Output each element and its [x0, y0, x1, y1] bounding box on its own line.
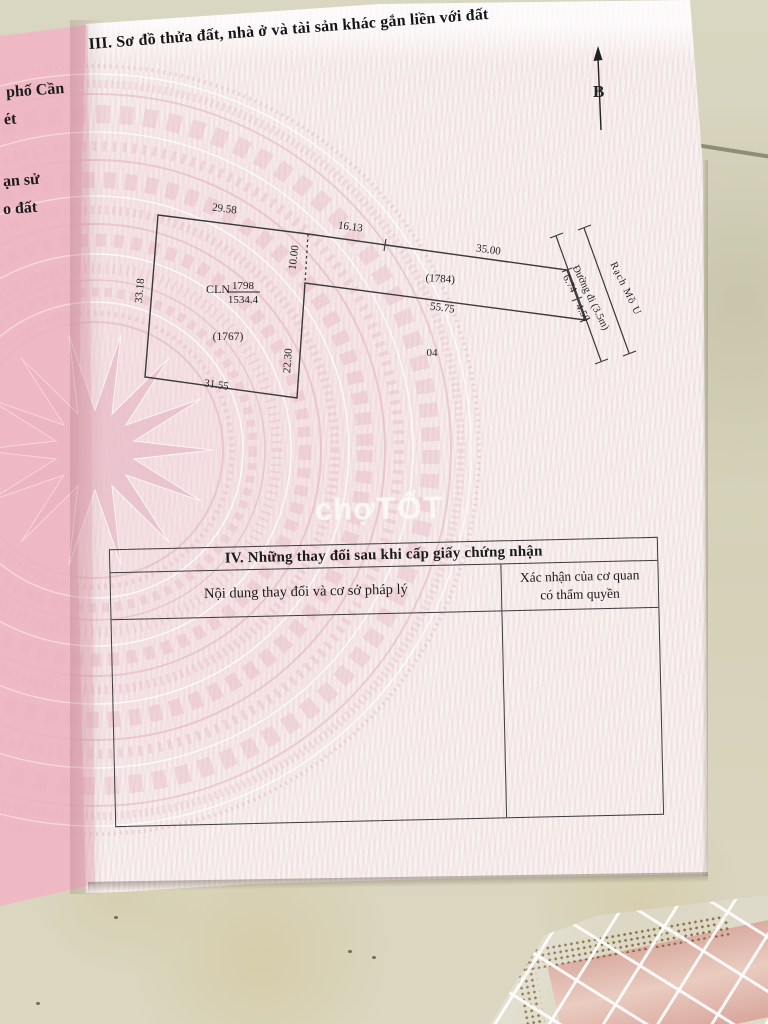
- watermark-cho: chợ: [315, 491, 377, 527]
- col2-header-line1: Xác nhận của cơ quan: [520, 567, 640, 587]
- dim-top3: 35.00: [475, 242, 502, 257]
- dim-inner-right: 22.30: [281, 348, 295, 374]
- floor-speck: [348, 950, 352, 953]
- dim-top2: 16.13: [337, 220, 364, 235]
- zone-label: 04: [427, 347, 439, 359]
- north-arrow: B: [586, 44, 618, 134]
- page-right-shadow: [702, 160, 708, 876]
- col1-header: Nội dung thay đổi và cơ sở pháp lý: [110, 564, 502, 619]
- parcel-dashed-divider: [305, 234, 308, 283]
- col1-body-cell: [112, 611, 508, 826]
- parcel-land-use: CLN: [206, 282, 230, 296]
- floor-speck: [372, 956, 376, 959]
- section-iv-table: IV. Những thay đổi sau khi cấp giấy chứn…: [109, 537, 664, 827]
- dim-strip-bottom: 55.75: [429, 300, 456, 315]
- left-page-fragment-2: ét: [3, 111, 17, 130]
- road-label: Đường đi (3.5m): [570, 264, 611, 333]
- photo-of-land-certificate: III. Sơ đồ thửa đất, nhà ở và tài sản kh…: [0, 0, 768, 1024]
- dim-dashed: 10.00: [287, 244, 302, 271]
- floor-speck: [114, 916, 118, 919]
- page-fold-shadow: [70, 20, 104, 894]
- north-arrow-head: [594, 46, 603, 61]
- north-arrow-label: B: [593, 82, 604, 101]
- table-body-row: [112, 608, 664, 826]
- left-page-fragment-3: ạn sử: [2, 171, 40, 192]
- dim-top: 29.58: [211, 202, 238, 217]
- watermark-tot: TỐT: [376, 490, 445, 526]
- parcel-number: 1798: [232, 280, 255, 292]
- floor-speck: [36, 1002, 40, 1005]
- col2-header-line2: có thẩm quyền: [540, 585, 620, 604]
- parcel-sketch: 29.58 16.13 35.00 10.00 33.18 22.30 31.5…: [130, 190, 675, 410]
- left-page-fragment-4: o đất: [2, 199, 37, 219]
- parcel-area: 1534.4: [228, 294, 259, 306]
- neighbor-parcel-left: (1767): [213, 331, 244, 343]
- dim-bottom: 31.55: [203, 377, 230, 392]
- col2-header: Xác nhận của cơ quan có thẩm quyền: [501, 561, 658, 611]
- parcel-outline: [145, 215, 585, 398]
- chotot-watermark: chợTỐT: [315, 490, 445, 528]
- col2-body-cell: [502, 608, 663, 817]
- neighbor-parcel-right: (1784): [425, 272, 455, 286]
- dim-left: 33.18: [133, 277, 147, 303]
